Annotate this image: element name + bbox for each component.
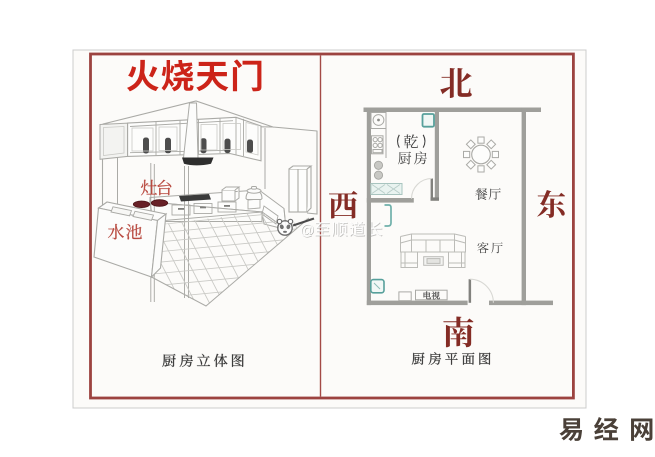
svg-text:@: @ xyxy=(300,223,315,239)
